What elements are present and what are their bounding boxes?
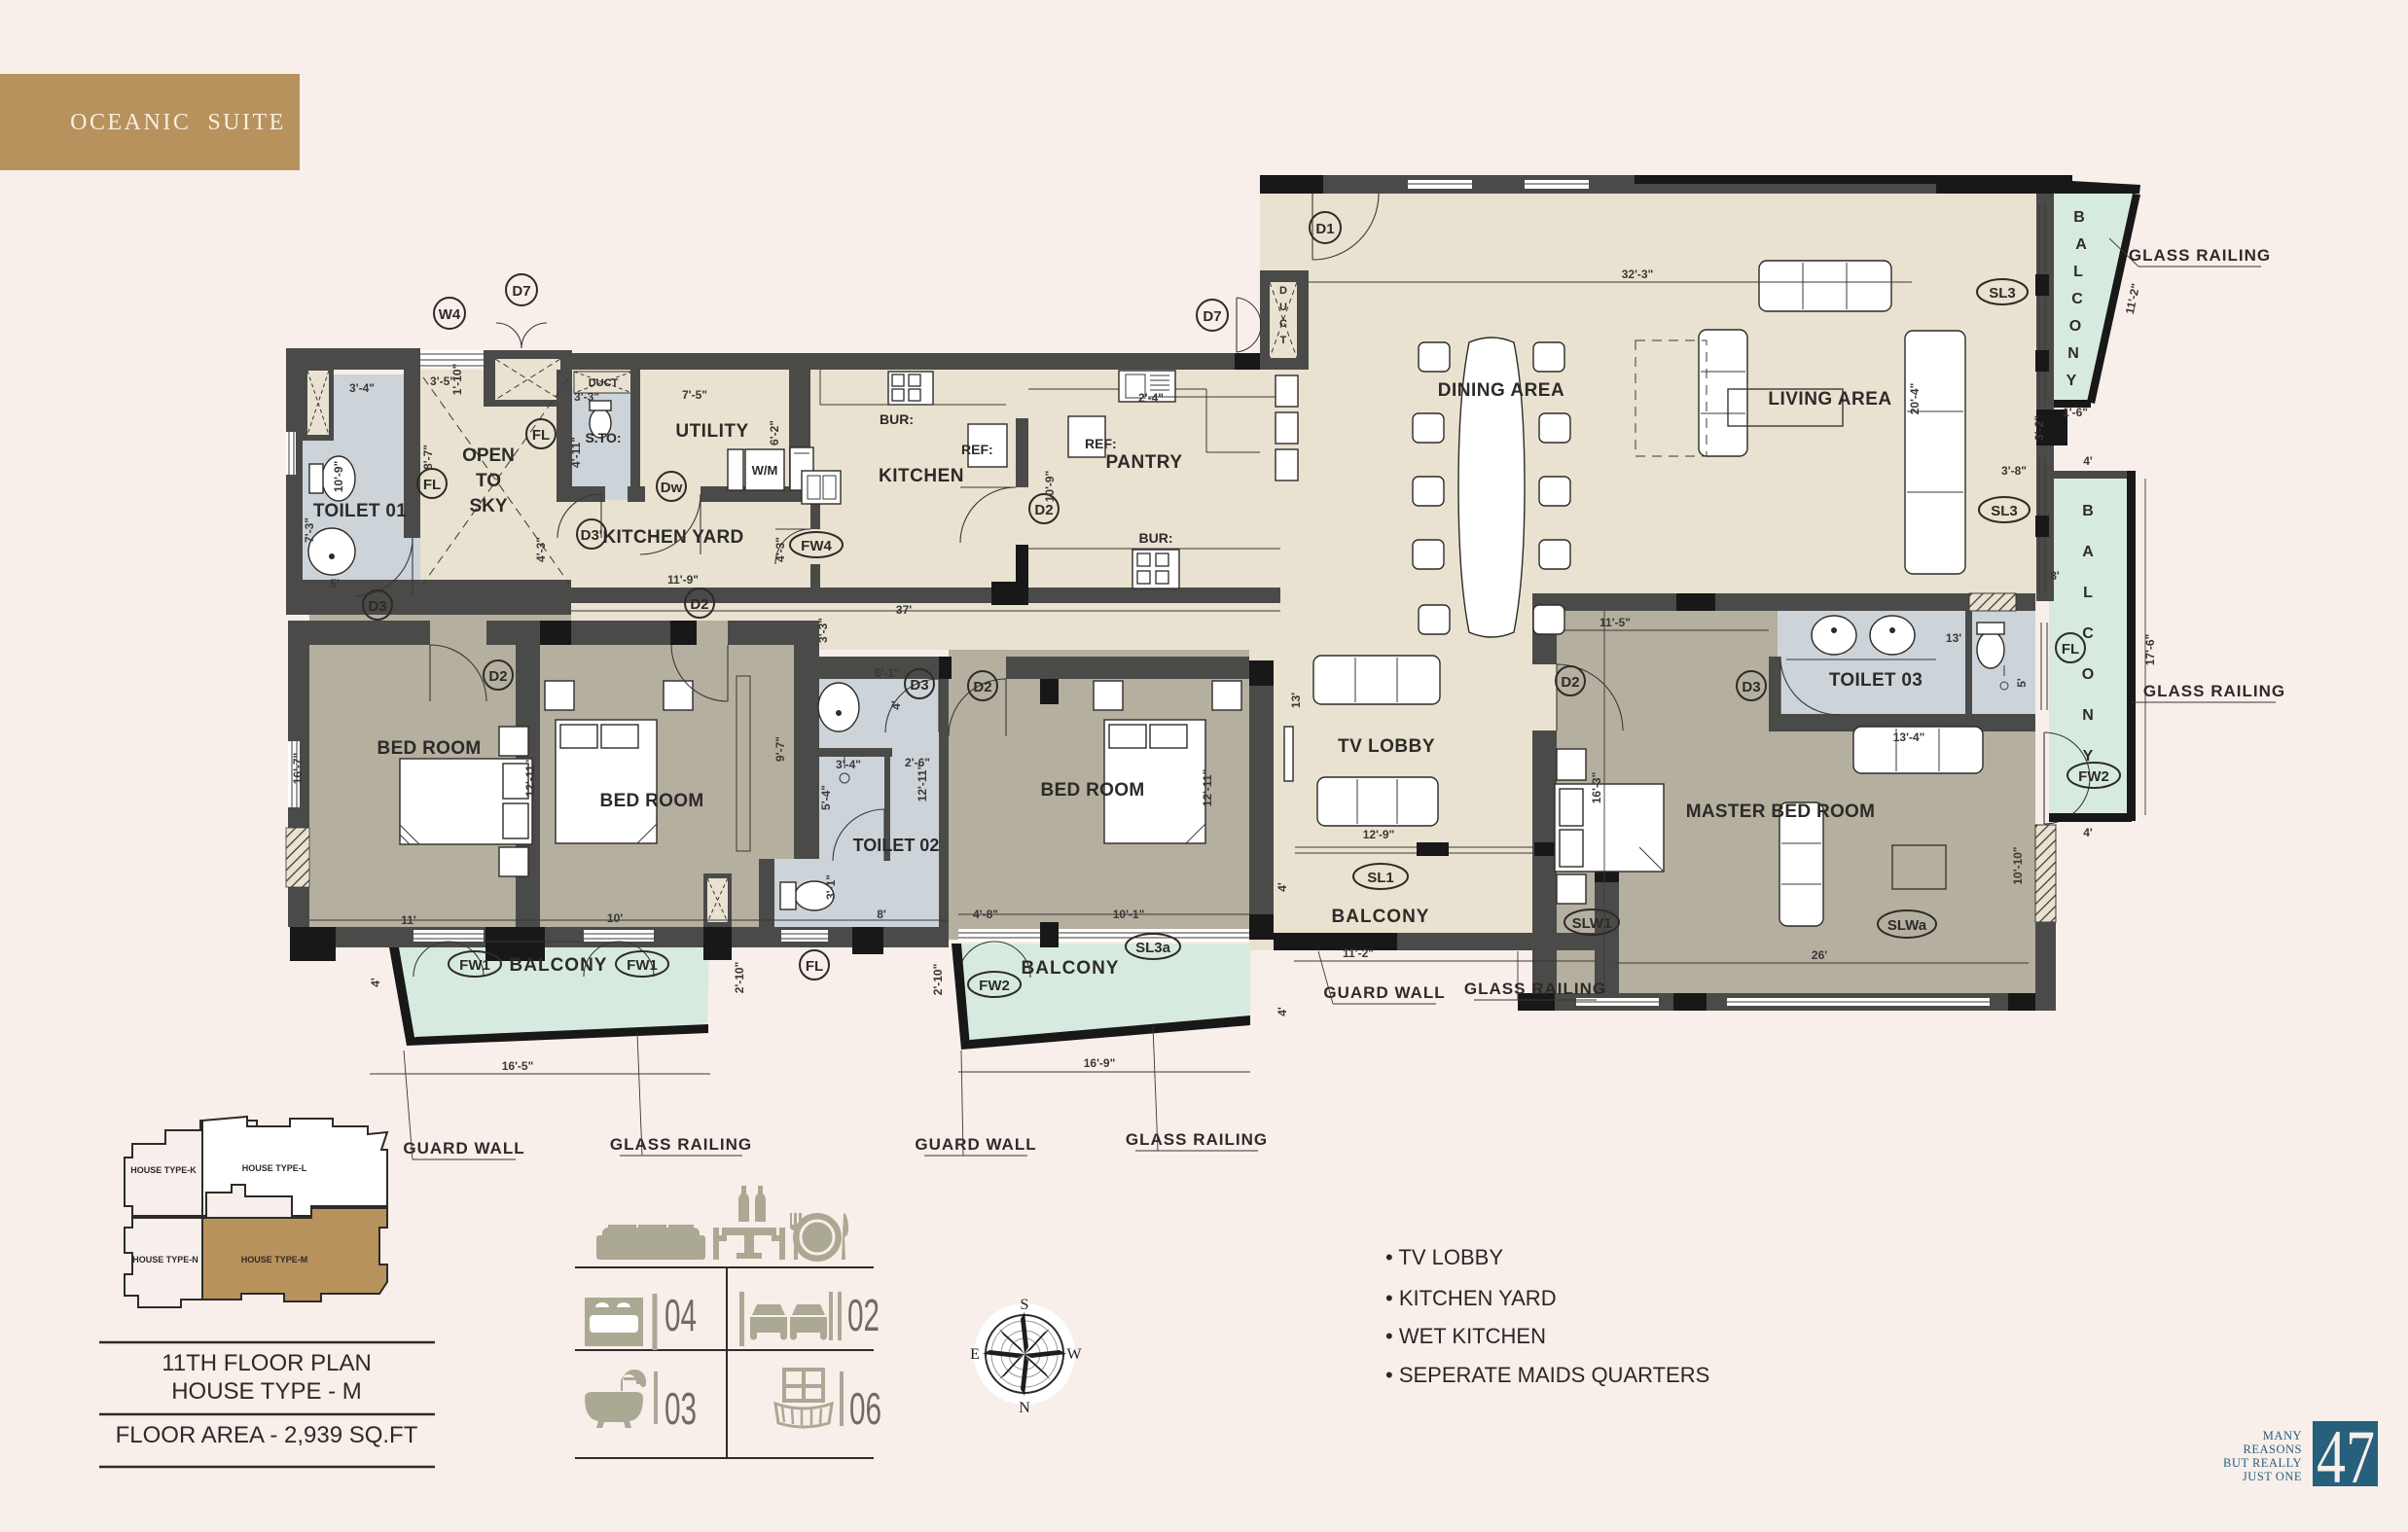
svg-text:7'-3": 7'-3" (303, 517, 316, 543)
svg-text:20'-4": 20'-4" (1908, 383, 1922, 415)
svg-text:10'-1": 10'-1" (1113, 908, 1145, 921)
svg-text:BED ROOM: BED ROOM (600, 791, 704, 811)
svg-text:5'-4": 5'-4" (819, 785, 833, 810)
svg-text:BALCONY: BALCONY (1332, 907, 1430, 927)
svg-text:KITCHEN YARD: KITCHEN YARD (602, 527, 743, 548)
svg-text:SKY: SKY (469, 496, 507, 517)
svg-text:W: W (1066, 1346, 1082, 1363)
svg-text:O: O (2082, 666, 2094, 683)
svg-text:7'-5": 7'-5" (682, 388, 707, 402)
svg-text:D2: D2 (1561, 674, 1579, 691)
svg-text:FL: FL (806, 958, 823, 975)
svg-text:SLW1: SLW1 (1572, 915, 1612, 932)
svg-text:11'-2": 11'-2" (1343, 946, 1374, 960)
svg-text:DUCT: DUCT (589, 377, 619, 389)
svg-text:3'-8": 3'-8" (2001, 464, 2027, 478)
svg-text:MASTER BED ROOM: MASTER BED ROOM (1686, 802, 1876, 822)
svg-text:3'-4": 3'-4" (836, 758, 861, 771)
svg-text:BALCONY: BALCONY (510, 955, 608, 976)
svg-text:C: C (1279, 318, 1287, 330)
svg-text:MANY: MANY (2263, 1429, 2302, 1443)
svg-text:6'-1": 6'-1" (875, 666, 900, 680)
svg-text:16'-5": 16'-5" (502, 1059, 534, 1073)
svg-text:KITCHEN: KITCHEN (879, 466, 964, 486)
svg-text:D2: D2 (488, 668, 507, 685)
svg-text:BED ROOM: BED ROOM (377, 738, 482, 759)
svg-text:REASONS: REASONS (2244, 1443, 2302, 1456)
svg-text:• KITCHEN YARD: • KITCHEN YARD (1385, 1286, 1557, 1310)
svg-text:OCEANIC SUITE: OCEANIC SUITE (70, 110, 286, 135)
svg-text:SL1: SL1 (1367, 870, 1394, 886)
svg-text:5': 5' (2015, 678, 2029, 688)
svg-text:5': 5' (330, 577, 340, 590)
svg-text:D2: D2 (973, 679, 991, 695)
svg-text:13': 13' (1946, 631, 1961, 645)
svg-text:T: T (1280, 335, 1287, 346)
svg-text:JUST ONE: JUST ONE (2243, 1470, 2302, 1483)
svg-text:N: N (2067, 345, 2079, 362)
svg-text:10': 10' (607, 911, 623, 925)
svg-text:4': 4' (2083, 826, 2093, 839)
svg-text:8': 8' (2050, 569, 2060, 583)
svg-text:2'-10": 2'-10" (931, 964, 945, 996)
svg-text:HOUSE TYPE-L: HOUSE TYPE-L (242, 1163, 307, 1173)
svg-text:8'-7": 8'-7" (421, 445, 435, 470)
svg-text:C: C (2071, 291, 2083, 307)
svg-text:12'-11": 12'-11" (916, 765, 929, 802)
svg-text:A: A (2075, 236, 2087, 253)
svg-text:4'-3": 4'-3" (773, 537, 787, 562)
svg-text:2'-4": 2'-4" (1138, 391, 1164, 405)
svg-text:FL: FL (532, 427, 550, 444)
svg-text:FW1: FW1 (627, 957, 658, 974)
svg-text:TOILET 02: TOILET 02 (853, 836, 940, 855)
svg-text:04: 04 (665, 1290, 697, 1340)
svg-text:FW1: FW1 (459, 957, 490, 974)
svg-text:4': 4' (889, 700, 903, 710)
svg-text:12'-9": 12'-9" (1363, 828, 1395, 841)
svg-text:FLOOR AREA - 2,939 SQ.FT: FLOOR AREA - 2,939 SQ.FT (116, 1422, 418, 1448)
svg-text:3'-3": 3'-3" (574, 390, 599, 404)
svg-text:N: N (1019, 1400, 1030, 1416)
svg-text:• TV LOBBY: • TV LOBBY (1385, 1245, 1503, 1269)
svg-text:FL: FL (423, 477, 441, 493)
svg-text:GUARD WALL: GUARD WALL (915, 1135, 1036, 1154)
svg-text:GLASS RAILING: GLASS RAILING (2143, 682, 2285, 700)
svg-text:N: N (2082, 707, 2094, 724)
svg-text:TOILET 03: TOILET 03 (1829, 670, 1923, 691)
svg-text:16'-3": 16'-3" (1590, 772, 1603, 804)
svg-text:B: B (2082, 503, 2094, 519)
svg-text:GLASS RAILING: GLASS RAILING (610, 1135, 752, 1154)
svg-text:4'-11": 4'-11" (569, 437, 583, 468)
svg-text:4': 4' (369, 978, 382, 987)
svg-text:D7: D7 (1203, 308, 1221, 325)
svg-text:16'-9": 16'-9" (1084, 1056, 1116, 1070)
svg-text:REF:: REF: (961, 442, 993, 457)
svg-text:1'-6": 1'-6" (2063, 406, 2088, 419)
svg-text:FW4: FW4 (801, 538, 832, 554)
svg-text:GUARD WALL: GUARD WALL (403, 1139, 524, 1158)
svg-text:TOILET 01: TOILET 01 (313, 501, 407, 521)
svg-text:GLASS RAILING: GLASS RAILING (1464, 980, 1606, 998)
svg-text:BALCONY: BALCONY (1022, 958, 1120, 979)
svg-text:4': 4' (1276, 1007, 1289, 1016)
svg-text:HOUSE TYPE-N: HOUSE TYPE-N (132, 1255, 198, 1265)
svg-text:HOUSE TYPE-K: HOUSE TYPE-K (130, 1165, 197, 1175)
svg-text:D3: D3 (368, 598, 386, 615)
svg-text:Y: Y (2067, 373, 2077, 389)
svg-text:D1: D1 (1315, 221, 1334, 237)
svg-text:D3': D3' (581, 527, 603, 544)
svg-text:8': 8' (877, 908, 886, 921)
svg-text:11TH FLOOR PLAN: 11TH FLOOR PLAN (162, 1350, 372, 1376)
svg-text:1'-10": 1'-10" (450, 364, 464, 396)
svg-text:FL: FL (2062, 641, 2079, 658)
svg-text:S: S (1021, 1297, 1029, 1313)
svg-text:SL3a: SL3a (1135, 940, 1171, 956)
svg-text:W4: W4 (439, 306, 461, 323)
svg-text:11'-5": 11'-5" (1599, 616, 1631, 629)
svg-text:L: L (2073, 264, 2083, 280)
svg-text:TV LOBBY: TV LOBBY (1338, 736, 1435, 757)
svg-text:• SEPERATE MAIDS QUARTERS: • SEPERATE MAIDS QUARTERS (1385, 1363, 1709, 1387)
svg-text:4': 4' (2083, 454, 2093, 468)
svg-text:02: 02 (847, 1290, 880, 1340)
svg-text:D7: D7 (512, 283, 530, 300)
svg-text:11': 11' (401, 913, 416, 927)
svg-text:SL3: SL3 (1989, 285, 2016, 302)
svg-text:D: D (1279, 285, 1287, 297)
svg-text:BED ROOM: BED ROOM (1041, 780, 1145, 801)
svg-text:L: L (2083, 585, 2093, 601)
svg-text:11'-9": 11'-9" (667, 573, 699, 587)
svg-text:6'-2": 6'-2" (768, 420, 781, 445)
svg-text:32'-3": 32'-3" (1622, 267, 1654, 281)
svg-text:10'-9": 10'-9" (1043, 471, 1057, 503)
svg-text:E: E (970, 1346, 980, 1363)
svg-text:PANTRY: PANTRY (1106, 452, 1183, 473)
svg-text:3'-1": 3'-1" (824, 874, 838, 900)
svg-text:DINING AREA: DINING AREA (1438, 380, 1564, 401)
svg-text:D2: D2 (690, 596, 708, 613)
svg-text:REF:: REF: (1085, 436, 1117, 451)
svg-text:O: O (2069, 318, 2081, 335)
svg-text:17'-6": 17'-6" (2143, 634, 2157, 666)
svg-text:37': 37' (896, 603, 912, 617)
svg-text:SL3: SL3 (1991, 503, 2018, 519)
svg-text:A: A (2082, 544, 2094, 560)
svg-text:9'-7": 9'-7" (773, 736, 787, 762)
svg-text:3'-2": 3'-2" (2032, 415, 2046, 441)
svg-text:13'-4": 13'-4" (1893, 730, 1925, 744)
svg-text:12'-11": 12'-11" (523, 760, 537, 798)
svg-text:16'-7": 16'-7" (291, 753, 305, 785)
svg-text:BUR:: BUR: (880, 411, 914, 427)
svg-text:D3: D3 (1742, 679, 1760, 695)
svg-text:U: U (1279, 302, 1287, 313)
svg-text:Dw: Dw (661, 480, 683, 496)
svg-text:13': 13' (1289, 693, 1303, 708)
svg-text:C: C (2082, 625, 2094, 642)
svg-text:GUARD WALL: GUARD WALL (1323, 983, 1445, 1002)
svg-text:10'-10": 10'-10" (2011, 846, 2025, 884)
svg-text:W/M: W/M (752, 463, 778, 478)
svg-text:3'-3": 3'-3" (816, 618, 830, 643)
svg-text:B: B (2073, 209, 2085, 226)
svg-text:SLWa: SLWa (1887, 917, 1927, 934)
svg-text:10'-9": 10'-9" (332, 461, 345, 493)
svg-text:D3: D3 (910, 677, 928, 694)
svg-text:GLASS RAILING: GLASS RAILING (1126, 1130, 1268, 1149)
svg-text:BUT REALLY: BUT REALLY (2223, 1456, 2302, 1470)
svg-text:4': 4' (1276, 882, 1289, 892)
svg-text:D2: D2 (1034, 502, 1053, 518)
svg-text:LIVING AREA: LIVING AREA (1768, 389, 1891, 410)
svg-text:• WET KITCHEN: • WET KITCHEN (1385, 1324, 1546, 1348)
svg-text:BUR:: BUR: (1139, 530, 1173, 546)
svg-text:FW2: FW2 (979, 978, 1010, 994)
svg-text:26': 26' (1812, 948, 1827, 962)
svg-text:3'-4": 3'-4" (349, 381, 375, 395)
svg-text:UTILITY: UTILITY (675, 421, 748, 442)
svg-text:47: 47 (2317, 1414, 2375, 1499)
svg-text:GLASS RAILING: GLASS RAILING (2129, 246, 2271, 265)
svg-text:03: 03 (665, 1383, 697, 1434)
svg-text:HOUSE TYPE - M: HOUSE TYPE - M (171, 1378, 362, 1405)
svg-text:12'-11": 12'-11" (1201, 769, 1214, 807)
svg-text:FW2: FW2 (2078, 768, 2109, 785)
svg-text:06: 06 (849, 1383, 881, 1434)
svg-text:4'-8": 4'-8" (973, 908, 998, 921)
svg-text:TO: TO (476, 471, 501, 491)
svg-text:HOUSE TYPE-M: HOUSE TYPE-M (241, 1255, 308, 1265)
svg-text:4'-3": 4'-3" (534, 537, 548, 562)
svg-text:2'-10": 2'-10" (733, 962, 746, 994)
svg-text:S.TO:: S.TO: (585, 430, 621, 445)
svg-text:OPEN: OPEN (462, 445, 515, 466)
